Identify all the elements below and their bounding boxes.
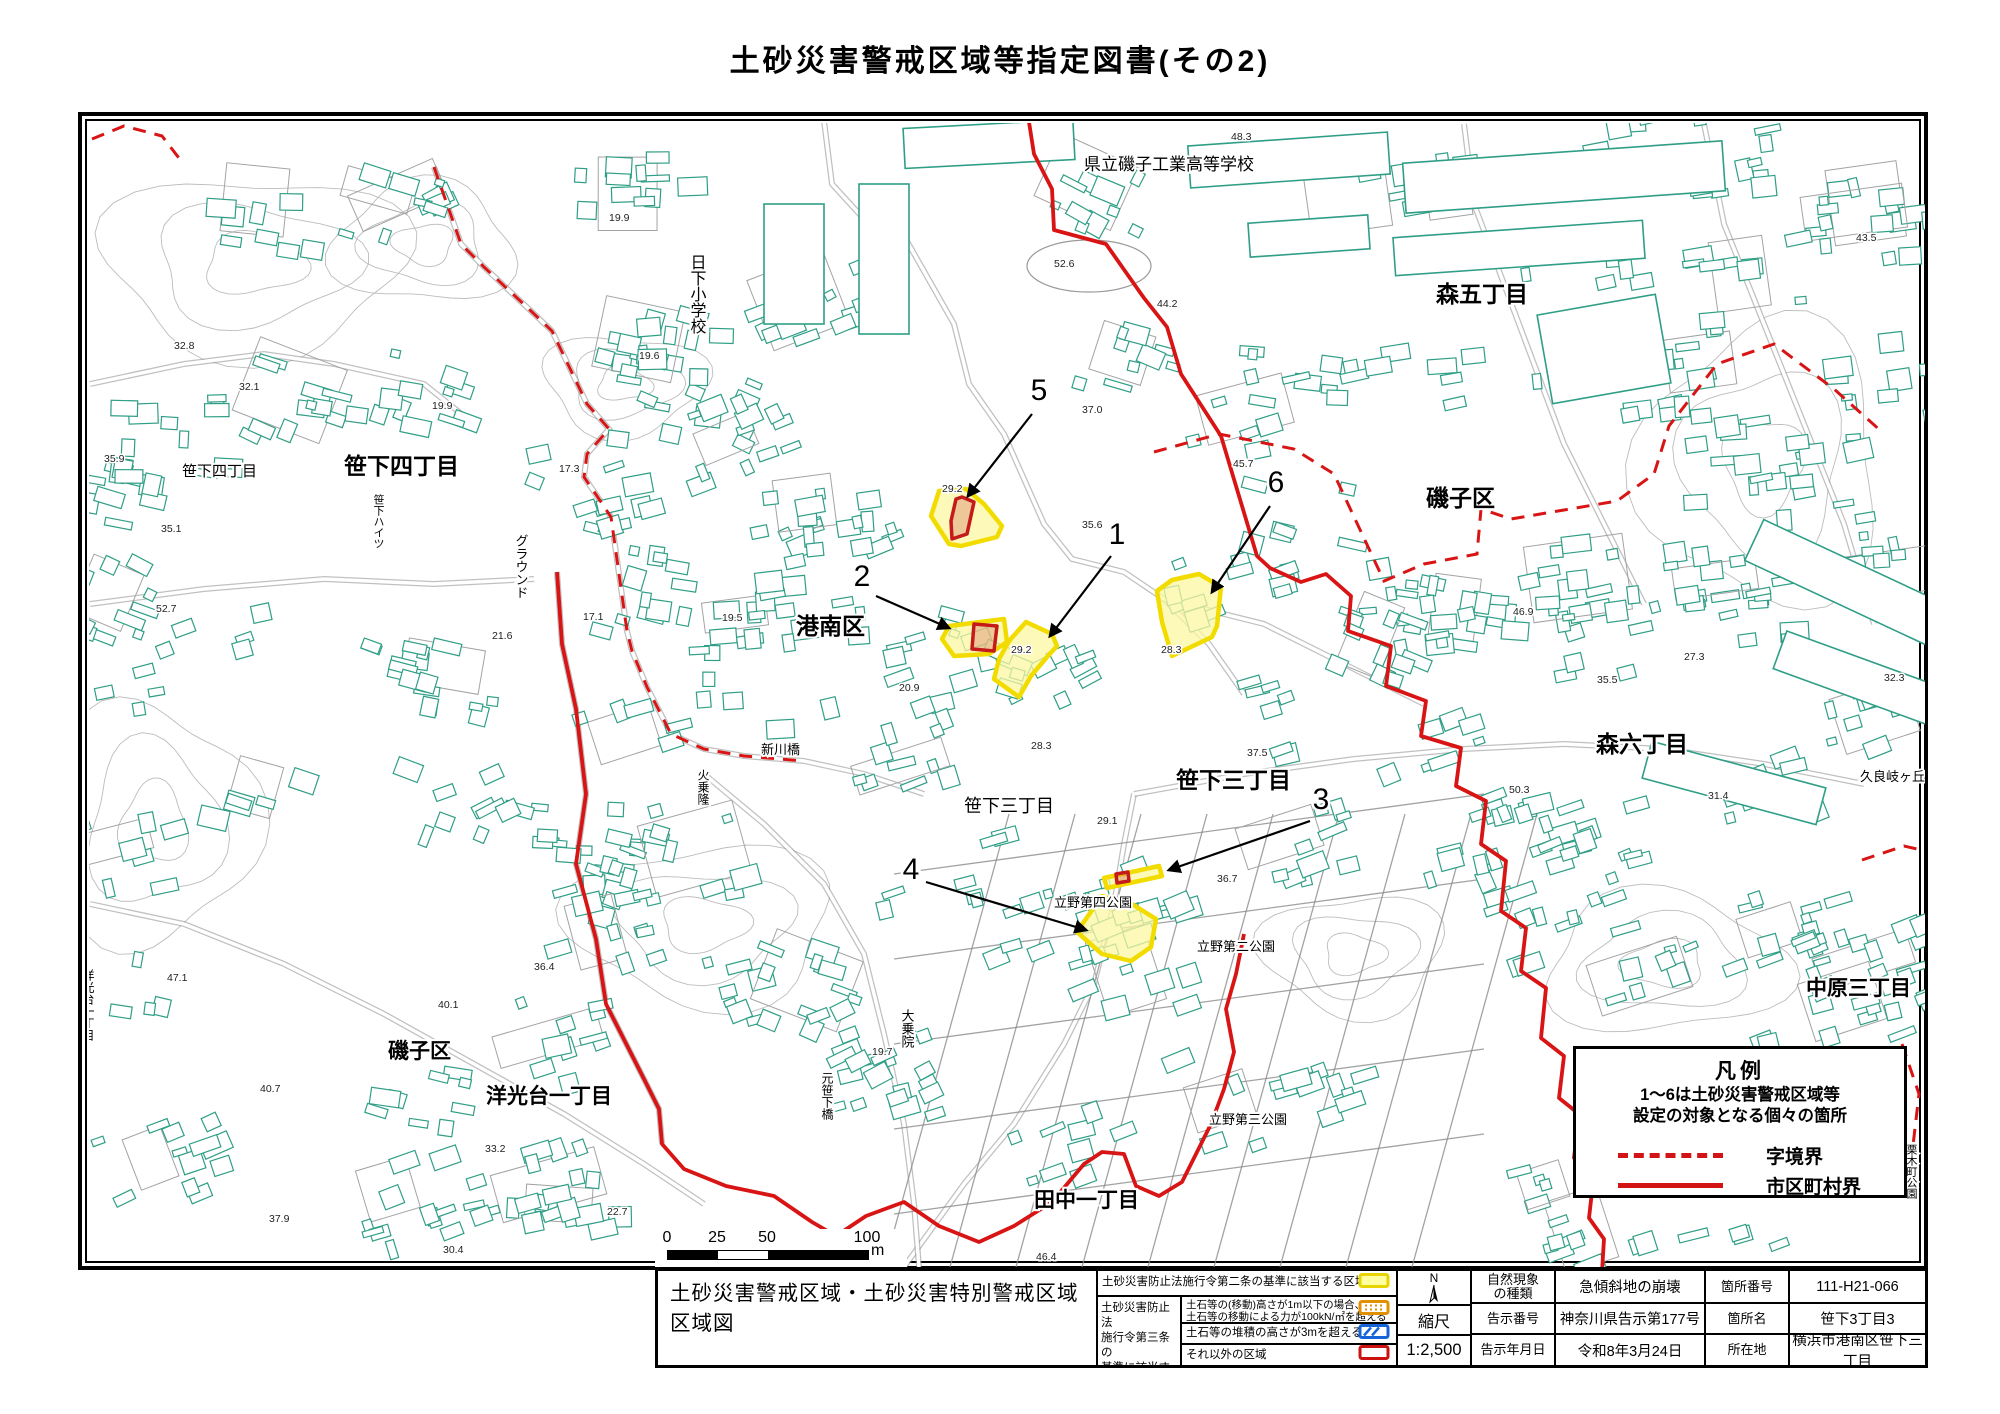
large-building	[1745, 520, 1925, 654]
scale-seg-3	[768, 1251, 868, 1259]
compass-n-label: N	[1430, 1272, 1439, 1284]
place-label: 火乗隆	[696, 769, 710, 806]
place-label: 港南区	[796, 613, 865, 639]
info-value-phenomenon-text: 急傾斜地の崩壊	[1579, 1276, 1681, 1297]
place-label: 磯子区	[1426, 485, 1495, 511]
site-red-zone-2	[972, 624, 997, 651]
place-label: 森五丁目	[1436, 281, 1528, 307]
elevation-label: 17.1	[583, 611, 604, 623]
legend-article3-group-label: 土砂災害防止法 施行令第三条の 基準に該当する 区域	[1096, 1295, 1180, 1365]
elevation-label: 22.7	[607, 1206, 628, 1218]
elevation-label: 46.9	[1513, 606, 1534, 618]
elevation-label: 19.7	[872, 1046, 893, 1058]
legend3-line1: 土砂災害防止法	[1101, 1302, 1170, 1329]
info-value-location: 横浜市港南区笹下三丁目	[1788, 1333, 1925, 1365]
elevation-label: 29.1	[1097, 815, 1118, 827]
elevation-label: 28.3	[1161, 644, 1182, 656]
info-key-notice-date: 告示年月日	[1470, 1333, 1554, 1365]
elevation-label: 45.7	[1233, 458, 1254, 470]
elevation-label: 31.4	[1708, 790, 1729, 802]
scale-bar-graphic	[667, 1250, 869, 1260]
aza-boundary-dashed	[92, 126, 182, 162]
legend-other-label: それ以外の区域	[1186, 1349, 1267, 1361]
map-legend-line1: 1〜6は土砂災害警戒区域等	[1576, 1085, 1904, 1106]
elevation-label: 36.4	[534, 961, 555, 973]
place-label: 洋光台一丁目	[89, 968, 95, 1041]
elevation-label: 30.4	[443, 1244, 464, 1256]
scale-seg-1	[668, 1251, 718, 1259]
dashed-boundary-label: 字境界	[1766, 1142, 1823, 1169]
area-map-title-line1: 土砂災害警戒区域・土砂災害特別警戒区域	[670, 1282, 1079, 1305]
legend-debris-move-line1: 土石等の(移動)高さが1m以下の場合、	[1186, 1299, 1365, 1311]
info-value-site-number-text: 111-H21-066	[1816, 1279, 1899, 1295]
legend3-line2: 施行令第三条の	[1101, 1332, 1170, 1359]
map-legend-solid-row: 市区町村界	[1576, 1172, 1904, 1198]
scale-tick-50: 50	[758, 1229, 776, 1247]
compass-cell: N	[1396, 1271, 1470, 1304]
elevation-label: 32.3	[1884, 672, 1905, 684]
place-label: 笹下三丁目	[1176, 767, 1291, 793]
legend-row-debris-move: 土石等の(移動)高さが1m以下の場合、 土石等の移動による力が100kN/㎡を超…	[1180, 1295, 1396, 1322]
large-building	[1403, 141, 1726, 213]
place-label: 県立磯子工業高等学校	[1084, 155, 1254, 174]
elevation-label: 52.7	[156, 603, 177, 615]
info-key-notice-number: 告示番号	[1470, 1302, 1554, 1333]
map-legend-line2: 設定の対象となる個々の箇所	[1576, 1106, 1904, 1127]
elevation-label: 46.4	[1036, 1251, 1057, 1263]
elevation-label: 28.3	[1031, 740, 1052, 752]
map-legend-dashed-row: 字境界	[1576, 1142, 1904, 1168]
info-value-notice-number-text: 神奈川県告示第177号	[1560, 1308, 1700, 1329]
elevation-label: 29.2	[942, 483, 963, 495]
place-label: 磯子区	[388, 1039, 451, 1063]
info-key-notice-number-text: 告示番号	[1472, 1312, 1554, 1326]
place-label: 新川橋	[761, 742, 800, 757]
place-label: 笹下ハイツ	[372, 494, 385, 549]
place-label: 森六丁目	[1596, 731, 1688, 757]
elevation-label: 36.7	[1217, 873, 1238, 885]
large-building	[1248, 215, 1370, 257]
scale-seg-2	[718, 1251, 768, 1259]
area-map-title-cell: 土砂災害警戒区域・土砂災害特別警戒区域 区域図	[658, 1271, 1096, 1365]
swatch-orange-dots	[1358, 1299, 1390, 1320]
legend-article2-row: 土砂災害防止法施行令第二条の基準に該当する区域	[1096, 1271, 1396, 1295]
place-label: 元笹下橋	[820, 1072, 834, 1121]
place-label: 立野第二公園	[1197, 939, 1275, 954]
legend-debris-move-line2: 土石等の移動による力が100kN/㎡を超える区域	[1186, 1311, 1387, 1322]
legend-debris-height-label: 土石等の堆積の高さが3mを超える区域	[1186, 1327, 1386, 1339]
legend3-line3: 基準に該当する	[1101, 1362, 1170, 1365]
info-value-phenomenon: 急傾斜地の崩壊	[1554, 1271, 1704, 1302]
scale-unit: m	[871, 1242, 884, 1260]
info-key-phenomenon-l2: の種類	[1472, 1287, 1554, 1301]
place-label: 洋光台一丁目	[486, 1084, 612, 1108]
north-arrow-icon	[1423, 1284, 1445, 1304]
site-red-zone-3	[1116, 872, 1129, 883]
info-value-site-number: 111-H21-066	[1788, 1271, 1925, 1302]
swatch-blue-hatch	[1358, 1323, 1390, 1343]
site-number-3: 3	[1313, 783, 1330, 816]
large-building	[859, 184, 909, 334]
large-building	[764, 204, 824, 324]
scale-tick-0: 0	[663, 1229, 672, 1247]
scale-label: 縮尺	[1418, 1308, 1450, 1332]
place-label: 立野第四公園	[1054, 895, 1132, 910]
scale-tick-25: 25	[708, 1229, 726, 1247]
legend-row-other: それ以外の区域	[1180, 1343, 1396, 1365]
site-arrow-3	[1169, 821, 1310, 870]
legend-article2-label: 土砂災害防止法施行令第二条の基準に該当する区域	[1098, 1271, 1396, 1291]
elevation-label: 20.9	[899, 682, 920, 694]
place-label: 久良岐ヶ丘住宅	[1860, 769, 1925, 784]
info-value-site-name: 笹下3丁目3	[1788, 1302, 1925, 1333]
elevation-label: 29.2	[1011, 644, 1032, 656]
large-building	[903, 123, 1075, 168]
elevation-label: 17.3	[559, 463, 580, 475]
solid-boundary-sample-line	[1618, 1183, 1723, 1188]
place-label: 大乗院	[900, 1009, 915, 1048]
info-value-notice-number: 神奈川県告示第177号	[1554, 1302, 1704, 1333]
place-label: 立野第三公園	[1209, 1112, 1287, 1127]
area-map-title-line2: 区域図	[670, 1312, 735, 1335]
elevation-label: 40.7	[260, 1083, 281, 1095]
elevation-label: 19.6	[639, 350, 660, 362]
info-value-location-text: 横浜市港南区笹下三丁目	[1790, 1333, 1925, 1365]
site-number-1: 1	[1109, 518, 1126, 551]
elevation-label: 40.1	[438, 999, 459, 1011]
scale-label-cell: 縮尺	[1396, 1304, 1470, 1334]
place-label: 田中一丁目	[1034, 1189, 1139, 1212]
elevation-label: 35.9	[104, 453, 125, 465]
elevation-label: 37.5	[1247, 747, 1268, 759]
elevation-label: 32.1	[239, 381, 260, 393]
elevation-label: 27.3	[1684, 651, 1705, 663]
swatch-yellow	[1358, 1273, 1390, 1294]
dashed-boundary-sample-line	[1618, 1153, 1723, 1158]
elevation-label: 19.9	[432, 400, 453, 412]
large-building	[1537, 294, 1671, 403]
site-number-4: 4	[903, 853, 920, 886]
place-label: 笹下四丁目	[344, 453, 459, 479]
elevation-label: 52.6	[1054, 258, 1075, 270]
elevation-label: 35.1	[161, 523, 182, 535]
info-key-site-name-text: 箇所名	[1706, 1312, 1788, 1326]
info-key-site-number-text: 箇所番号	[1706, 1280, 1788, 1294]
map-legend-box: 凡例 1〜6は土砂災害警戒区域等 設定の対象となる個々の箇所 字境界 市区町村界	[1573, 1046, 1907, 1198]
info-value-site-name-text: 笹下3丁目3	[1820, 1308, 1894, 1329]
elevation-label: 44.2	[1157, 298, 1178, 310]
place-label: 日下小学校	[688, 254, 707, 334]
elevation-label: 32.8	[174, 340, 195, 352]
elevation-label: 50.3	[1509, 784, 1530, 796]
info-key-location-text: 所在地	[1706, 1343, 1788, 1357]
place-label: グラウンド	[514, 534, 529, 599]
elevation-label: 19.9	[609, 212, 630, 224]
info-key-site-name: 箇所名	[1704, 1302, 1788, 1333]
elevation-label: 35.5	[1597, 674, 1618, 686]
info-key-phenomenon-l1: 自然現象	[1472, 1273, 1554, 1287]
elevation-label: 47.1	[167, 972, 188, 984]
info-key-location: 所在地	[1704, 1333, 1788, 1365]
elevation-label: 21.6	[492, 630, 513, 642]
info-key-notice-date-text: 告示年月日	[1472, 1343, 1554, 1357]
place-label: 中原三丁目	[1806, 977, 1911, 1000]
site-number-6: 6	[1268, 466, 1285, 499]
elevation-label: 37.0	[1082, 404, 1103, 416]
site-arrow-1	[1050, 556, 1111, 636]
elevation-label: 19.5	[722, 612, 743, 624]
elevation-label: 48.3	[1231, 131, 1252, 143]
swatch-red-outline	[1358, 1345, 1390, 1366]
place-label: 笹下三丁目	[964, 796, 1054, 816]
page-title: 土砂災害警戒区域等指定図書(その2)	[0, 36, 2000, 80]
info-key-site-number: 箇所番号	[1704, 1271, 1788, 1302]
scale-bar: 0 25 50 100 m	[655, 1229, 907, 1267]
scale-value-cell: 1:2,500	[1396, 1334, 1470, 1365]
elevation-label: 33.2	[485, 1143, 506, 1155]
footer-table: 土砂災害警戒区域・土砂災害特別警戒区域 区域図 土砂災害防止法施行令第二条の基準…	[655, 1268, 1928, 1368]
aza-boundary-dashed	[1862, 846, 1925, 860]
site-arrow-2	[876, 596, 949, 628]
elevation-label: 37.9	[269, 1213, 290, 1225]
info-value-notice-date: 令和8年3月24日	[1554, 1333, 1704, 1365]
site-number-2: 2	[854, 560, 871, 593]
info-value-notice-date-text: 令和8年3月24日	[1578, 1340, 1683, 1361]
scale-value: 1:2,500	[1406, 1341, 1461, 1360]
place-label: 笹下四丁目	[182, 463, 257, 480]
info-key-phenomenon: 自然現象 の種類	[1470, 1271, 1554, 1302]
map-legend-title: 凡例	[1576, 1055, 1904, 1085]
elevation-label: 43.5	[1856, 232, 1877, 244]
solid-boundary-label: 市区町村界	[1766, 1172, 1861, 1199]
site-number-5: 5	[1031, 374, 1048, 407]
legend-row-debris-height: 土石等の堆積の高さが3mを超える区域	[1180, 1322, 1396, 1343]
elevation-label: 35.6	[1082, 519, 1103, 531]
